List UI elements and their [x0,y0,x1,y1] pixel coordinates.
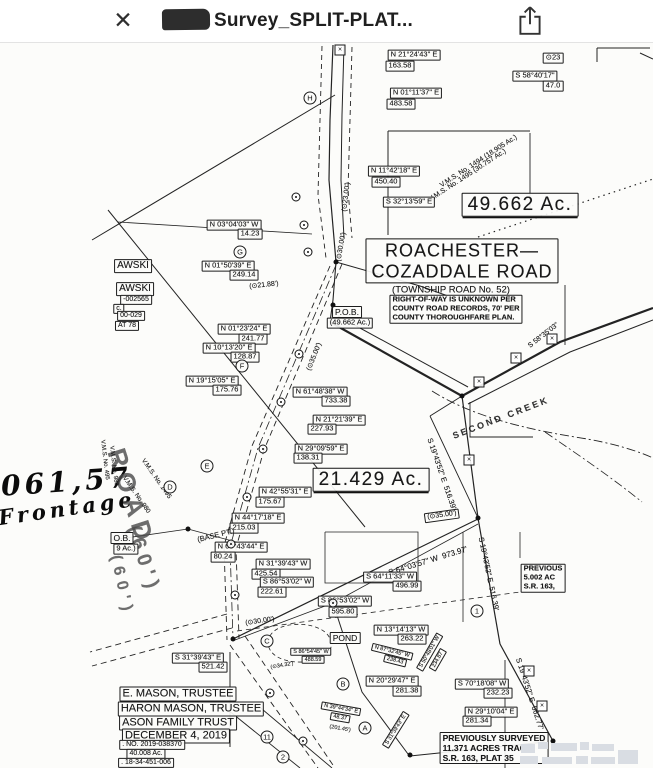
map-label: 80.24 [211,552,236,563]
pin-marker [227,540,236,549]
monument-dot [186,527,191,532]
watermark-block [538,742,548,749]
map-label: RIGHT-OF-WAY IS UNKNOWN PER COUNTY ROAD … [389,295,522,324]
watermark-block [521,744,535,753]
map-label: S 32°13'59" E [383,197,435,208]
document-viewer-header: ✕ Survey_SPLIT-PLAT... [0,0,653,43]
map-label: N 11°42'18" E [368,166,420,177]
pin-marker [304,248,313,257]
map-label: -002565 [120,295,152,305]
boxed-x-monument: × [537,701,548,712]
watermark-block [580,742,589,750]
map-label: N 21°24'43" E [388,50,441,61]
pin-marker [277,398,286,407]
map-label: (201.45') [329,724,351,734]
map-label: E. MASON, TRUSTEE [119,687,236,702]
corner-marker: H [304,92,317,105]
corner-marker: F [236,360,249,373]
map-label-layer: N 21°24'43" E163.58⊙23S 58°40'17"47.0N 0… [0,0,653,768]
watermark-block [591,757,615,764]
map-label: AWSKI [116,282,154,296]
pin-marker [292,193,301,202]
monument-dot [408,753,413,758]
corner-marker: A [359,722,372,735]
map-label: AWSKI [114,259,152,273]
share-button[interactable] [512,4,548,40]
watermark-block [542,757,572,764]
map-label: N 01°11'37" E [390,88,442,99]
map-label: SECOND CREEK [451,395,551,442]
map-label: (⊙34.32') [270,661,294,671]
map-label: S 19°43'52" E 516.39' [425,437,458,511]
map-label: 232.23 [484,688,513,699]
document-title: Survey_SPLIT-PLAT... [214,0,413,42]
pin-marker [259,445,268,454]
map-label: PREVIOUS 5.002 AC S.R. 163, [521,564,566,593]
map-label: (⊙35.00') [424,508,460,523]
pin-marker [231,591,240,600]
boxed-x-monument: × [335,45,346,56]
map-label: 521.42 [199,662,228,673]
map-label: HARON MASON, TRUSTEE [118,702,264,717]
pin-marker [266,689,275,698]
plat-map-viewport[interactable]: N 21°24'43" E163.58⊙23S 58°40'17"47.0N 0… [0,0,653,768]
redacted-filename-blob [162,9,210,31]
map-label: 175.67 [256,497,285,508]
monument-dot [231,637,236,642]
corner-marker: C [261,635,274,648]
map-label: 281.34 [463,716,492,727]
map-label: P.O.B. [332,306,362,318]
monument-dot [334,260,339,265]
map-label: 49.662 Ac. [462,193,579,217]
map-label: S 19°43'52" E 516.39' [476,536,500,611]
monument-dot [331,303,336,308]
map-label: (⊙35.00') [306,342,325,372]
map-label: 227.93 [308,424,337,435]
boxed-x-monument: × [464,455,475,466]
map-label: 138.31 [294,453,323,464]
corner-marker: D [164,481,177,494]
map-label: . 18-34-451-006 [118,758,174,768]
corner-marker: B [337,678,350,691]
corner-marker: G [234,246,247,259]
map-label: (⊙30.00') [245,616,275,628]
map-label: 496.99 [393,581,422,592]
boxed-x-monument: × [524,666,535,677]
map-label: S 86°53'02" W [318,596,372,607]
pin-marker [295,350,304,359]
pin-marker [299,737,308,746]
map-label: POND [330,632,361,644]
map-label: 263.22 [398,634,427,645]
map-label: 450.40 [372,177,401,188]
share-export-icon [516,25,544,40]
map-label: 9 Ac.) [113,544,138,555]
map-label: 47.0 [543,81,564,92]
watermark-block [576,756,588,764]
map-label: 175.76 [213,385,242,396]
watermark-block [618,750,638,764]
pin-marker [329,599,338,608]
close-button[interactable]: ✕ [106,1,140,41]
map-label: (⊙30.00') [335,232,348,262]
boxed-x-monument: × [547,334,558,345]
map-label: 483.58 [387,99,416,110]
corner-marker: 1 [471,605,484,618]
pin-marker [300,221,309,230]
map-label: (⊙23.00') [341,182,353,212]
corner-marker: E [201,460,214,473]
map-label: 163.58 [386,61,415,72]
map-label: 21.429 Ac. [313,468,430,492]
map-label: 222.61 [258,587,287,598]
map-label: 14.23 [238,229,263,240]
map-label: (49.662 Ac.) [327,318,373,329]
map-label: 00-029 [117,311,145,321]
map-label: 733.38 [322,396,351,407]
map-label: 281.38 [393,686,422,697]
map-label: ROACHESTER— COZADDALE ROAD [365,238,558,283]
monument-dot [476,516,481,521]
map-label: 595.80 [329,607,358,618]
map-label: 488.59 [302,656,325,664]
map-label: 249.14 [230,270,259,281]
map-label: ⊙23 [543,53,564,64]
pin-marker [243,493,252,502]
map-label: O.B. [110,532,133,544]
map-label: S 31°39'43" E [382,711,410,749]
corner-marker: 11 [261,731,274,744]
boxed-x-monument: × [474,377,485,388]
corner-marker: 2 [277,751,290,764]
boxed-x-monument: × [511,353,522,364]
watermark-block [551,743,577,751]
watermark-block [520,756,538,764]
watermark-block [592,744,614,751]
monument-dot [460,394,465,399]
map-label: AT 78 [115,321,139,331]
map-label: (⊙21.88') [249,280,279,291]
